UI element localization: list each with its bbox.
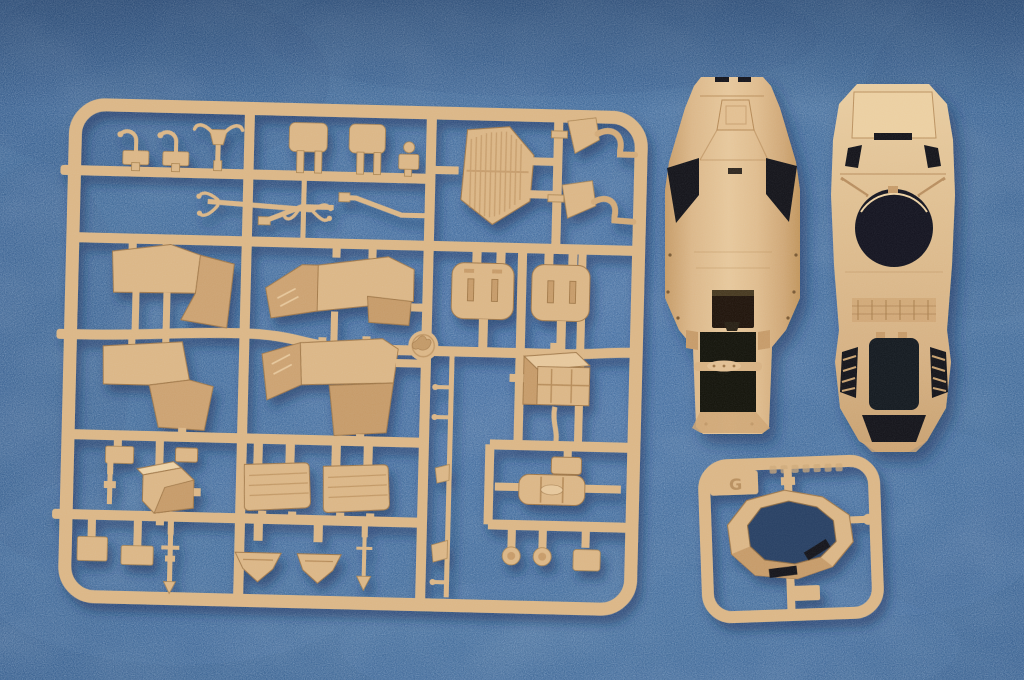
photo-grain-overlay bbox=[0, 0, 1024, 680]
photo-canvas: G bbox=[0, 0, 1024, 680]
scene: G bbox=[0, 0, 1024, 680]
